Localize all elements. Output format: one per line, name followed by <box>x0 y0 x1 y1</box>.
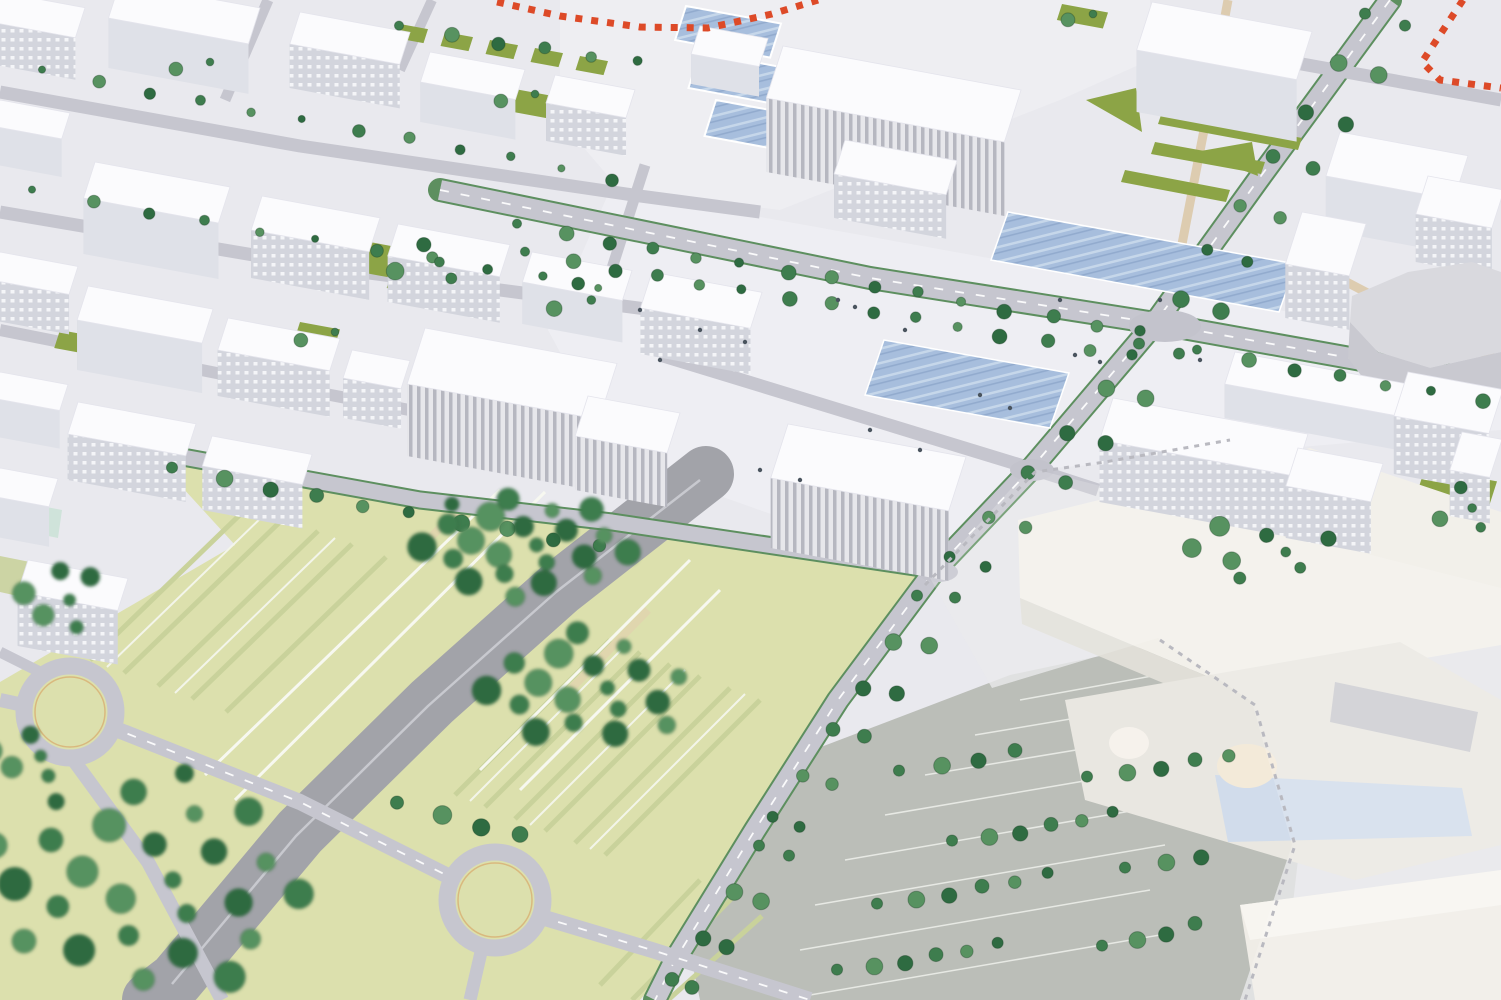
tree <box>942 888 957 903</box>
tree <box>826 778 839 791</box>
tree <box>310 488 324 502</box>
tree <box>433 806 452 825</box>
tree <box>444 549 463 568</box>
tree <box>353 125 366 138</box>
tree <box>169 62 183 76</box>
tree <box>539 272 548 281</box>
tree <box>1076 815 1089 828</box>
tree <box>1158 854 1175 871</box>
person <box>903 328 907 332</box>
tree <box>531 90 539 98</box>
tree <box>992 937 1003 948</box>
tree <box>35 750 47 762</box>
tree <box>1188 753 1202 767</box>
tree <box>572 277 585 290</box>
roundabout-west-island <box>35 677 105 747</box>
tree <box>22 726 40 744</box>
person <box>1058 298 1062 302</box>
tree <box>934 757 951 774</box>
tree <box>586 52 597 63</box>
tree <box>1019 521 1032 534</box>
tree <box>565 714 583 732</box>
tree <box>545 503 559 517</box>
tree <box>404 132 415 143</box>
tree <box>953 322 962 331</box>
tree <box>856 681 871 696</box>
tree <box>602 721 628 747</box>
tree <box>178 904 196 922</box>
tree <box>417 237 431 251</box>
tree <box>47 895 69 917</box>
tree <box>1081 771 1092 782</box>
tree <box>633 56 642 65</box>
tree <box>825 271 838 284</box>
tree <box>1223 552 1241 570</box>
tree <box>696 931 711 946</box>
tree <box>390 796 403 809</box>
tree <box>247 108 256 117</box>
tree <box>483 264 493 274</box>
tree <box>1154 761 1169 776</box>
tree <box>1259 528 1273 542</box>
tree <box>51 562 69 580</box>
tree <box>1060 426 1075 441</box>
tree <box>1223 750 1236 763</box>
tree <box>386 262 404 280</box>
tree <box>1159 927 1174 942</box>
tree <box>166 462 177 473</box>
tree <box>975 879 989 893</box>
tree <box>1129 932 1146 949</box>
tree <box>1266 149 1280 163</box>
roundabout-south-island <box>458 863 532 937</box>
tree <box>132 968 154 990</box>
tree <box>1281 547 1291 557</box>
tree <box>539 42 551 54</box>
tree <box>142 832 166 856</box>
tree <box>371 244 384 257</box>
tree <box>472 676 501 705</box>
tree <box>496 565 514 583</box>
tree <box>566 622 588 644</box>
tree <box>606 174 619 187</box>
tree <box>225 889 253 917</box>
tree <box>70 621 83 634</box>
tree <box>997 304 1012 319</box>
tree <box>1119 764 1136 781</box>
tree <box>595 284 602 291</box>
tree <box>1061 13 1075 27</box>
tree <box>408 533 437 562</box>
tree <box>195 95 205 105</box>
tree <box>1468 504 1477 513</box>
person <box>758 468 762 472</box>
tree <box>240 929 260 949</box>
tree <box>658 716 676 734</box>
tree <box>522 718 549 745</box>
tree <box>572 545 596 569</box>
tree <box>646 690 670 714</box>
tree <box>455 568 482 595</box>
tree <box>980 561 991 572</box>
tree <box>1041 334 1054 347</box>
tree <box>1380 381 1391 392</box>
tree <box>921 637 938 654</box>
tree <box>506 152 515 161</box>
tree <box>525 669 552 696</box>
tree <box>956 297 965 306</box>
tree <box>504 653 525 674</box>
tree <box>767 811 778 822</box>
tree <box>200 215 210 225</box>
tree <box>981 829 998 846</box>
tree <box>1192 345 1201 354</box>
tree <box>651 269 663 281</box>
tree <box>857 729 871 743</box>
tree <box>216 470 233 487</box>
tree <box>587 296 596 305</box>
tree <box>1044 817 1058 831</box>
tree <box>92 809 125 842</box>
tree <box>510 695 529 714</box>
tree <box>1009 876 1022 889</box>
tree <box>1359 8 1370 19</box>
tree <box>235 798 263 826</box>
tree <box>67 856 99 888</box>
tree <box>63 935 95 967</box>
tree <box>144 88 155 99</box>
tree <box>1098 436 1113 451</box>
tree <box>1107 806 1118 817</box>
tree <box>88 195 101 208</box>
tree <box>1476 394 1491 409</box>
tree <box>63 594 75 606</box>
tree <box>492 37 505 50</box>
person <box>1158 298 1162 302</box>
person <box>1198 358 1202 362</box>
tree <box>1135 326 1146 337</box>
tree <box>1234 200 1247 213</box>
tree <box>1330 55 1347 72</box>
tree <box>434 257 444 267</box>
tree <box>486 542 512 568</box>
tree <box>1047 310 1060 323</box>
tree <box>971 753 986 768</box>
person <box>978 393 982 397</box>
tree <box>93 75 106 88</box>
tree <box>911 590 922 601</box>
tree <box>694 280 705 291</box>
tree <box>871 898 882 909</box>
tree <box>1173 348 1184 359</box>
building-front-face <box>1450 470 1490 523</box>
person <box>868 428 872 432</box>
tree <box>144 208 155 219</box>
tree <box>885 634 902 651</box>
tree <box>559 226 574 241</box>
tree <box>831 964 842 975</box>
tree <box>1096 940 1107 951</box>
tree <box>566 254 581 269</box>
person <box>1008 406 1012 410</box>
tree <box>893 765 904 776</box>
person <box>1073 353 1077 357</box>
tree <box>992 329 1007 344</box>
tree <box>457 527 484 554</box>
tree <box>186 806 203 823</box>
tree <box>1338 117 1353 132</box>
tree <box>1182 539 1201 558</box>
tree <box>206 58 214 66</box>
tree <box>794 821 805 832</box>
tree <box>312 235 319 242</box>
tree <box>555 519 577 541</box>
tree <box>1194 850 1209 865</box>
tree <box>214 961 246 993</box>
tree <box>1476 522 1486 532</box>
tree <box>929 948 943 962</box>
tree <box>1242 256 1253 267</box>
tree <box>1042 867 1053 878</box>
tree <box>1008 743 1022 757</box>
tree <box>513 516 534 537</box>
existing-dome <box>1109 727 1149 759</box>
masterplan-aerial-rendering <box>0 0 1501 1000</box>
tree <box>1133 338 1144 349</box>
tree <box>512 826 528 842</box>
tree <box>121 779 147 805</box>
tree <box>1321 531 1337 547</box>
tree <box>257 853 275 871</box>
person <box>836 298 840 302</box>
tree <box>1013 826 1028 841</box>
tree <box>1295 562 1306 573</box>
tree <box>1334 369 1346 381</box>
tree <box>1306 161 1320 175</box>
tree <box>445 27 460 42</box>
tree <box>555 687 581 713</box>
tree <box>1274 212 1287 225</box>
tree <box>1432 511 1448 527</box>
tree <box>1370 67 1387 84</box>
tree <box>913 286 924 297</box>
tree <box>32 604 54 626</box>
tree <box>39 828 63 852</box>
tree <box>455 145 465 155</box>
tree <box>946 835 957 846</box>
tree <box>118 925 138 945</box>
tree <box>1188 916 1202 930</box>
tree <box>403 507 414 518</box>
tree <box>737 285 746 294</box>
tree <box>529 538 543 552</box>
tree <box>201 839 227 865</box>
tree <box>889 686 904 701</box>
tree <box>394 21 403 30</box>
tree <box>1 756 23 778</box>
tree <box>866 958 883 975</box>
tree <box>558 165 565 172</box>
tree <box>1242 353 1257 368</box>
person <box>658 358 662 362</box>
tree <box>781 265 796 280</box>
person <box>918 448 922 452</box>
person <box>743 340 747 344</box>
tree <box>38 66 45 73</box>
tree <box>600 681 614 695</box>
tree <box>255 228 264 237</box>
tree <box>910 312 921 323</box>
tree <box>609 264 622 277</box>
tree <box>579 497 603 521</box>
person <box>638 308 642 312</box>
tree <box>263 482 278 497</box>
tree <box>506 587 525 606</box>
tree <box>539 554 555 570</box>
tree <box>544 639 573 668</box>
tree <box>1213 303 1230 320</box>
tree <box>596 528 612 544</box>
person <box>698 328 702 332</box>
tree <box>356 500 369 513</box>
tree <box>719 939 734 954</box>
tree <box>284 879 314 909</box>
masterplan-scene <box>0 0 1501 1000</box>
tree <box>165 872 182 889</box>
tree <box>1119 862 1130 873</box>
tree <box>12 929 36 953</box>
tree <box>665 972 679 986</box>
tree <box>28 186 35 193</box>
tree <box>1059 476 1073 490</box>
tree <box>1089 10 1097 18</box>
tree <box>869 281 881 293</box>
tree <box>628 659 650 681</box>
tree <box>1399 20 1410 31</box>
tree <box>294 333 308 347</box>
tree <box>898 956 913 971</box>
tree <box>961 945 974 958</box>
tree <box>1098 380 1115 397</box>
tree <box>48 793 65 810</box>
tree <box>175 764 193 782</box>
tree <box>726 884 743 901</box>
tree <box>473 819 490 836</box>
tree <box>617 639 631 653</box>
tree <box>685 980 699 994</box>
tree <box>0 867 31 900</box>
tree <box>584 567 602 585</box>
tree <box>331 328 339 336</box>
tree <box>494 94 508 108</box>
person <box>1098 360 1102 364</box>
tree <box>446 273 457 284</box>
tree <box>603 237 616 250</box>
person <box>798 478 802 482</box>
tree <box>583 655 604 676</box>
tree <box>826 722 840 736</box>
tree <box>445 497 459 511</box>
tree <box>908 891 925 908</box>
tree <box>610 701 626 717</box>
tree <box>42 769 55 782</box>
tree <box>1426 386 1435 395</box>
tree <box>1173 291 1190 308</box>
tree <box>438 514 459 535</box>
tree <box>1084 345 1096 357</box>
person <box>853 305 857 309</box>
tree <box>753 840 764 851</box>
tree <box>782 292 797 307</box>
tree <box>1454 481 1467 494</box>
tree <box>1202 244 1213 255</box>
tree <box>546 301 562 317</box>
tree <box>1091 320 1103 332</box>
tree <box>81 567 100 586</box>
tree <box>1234 572 1246 584</box>
tree <box>106 884 136 914</box>
tree <box>734 258 743 267</box>
tree <box>520 247 529 256</box>
tree <box>531 570 557 596</box>
tree <box>671 669 687 685</box>
tree <box>753 893 770 910</box>
tree <box>949 592 960 603</box>
tree <box>615 539 641 565</box>
tree <box>497 488 519 510</box>
tree <box>298 115 305 122</box>
tree <box>168 938 198 968</box>
tree <box>12 582 35 605</box>
tree <box>868 307 880 319</box>
tree <box>691 253 702 264</box>
tree <box>1210 516 1230 536</box>
tree <box>647 242 659 254</box>
tree <box>783 850 794 861</box>
tree <box>1298 105 1313 120</box>
tree <box>512 219 521 228</box>
tree <box>1288 364 1301 377</box>
tree <box>797 770 810 783</box>
tree <box>1127 350 1138 361</box>
tree <box>1137 390 1154 407</box>
